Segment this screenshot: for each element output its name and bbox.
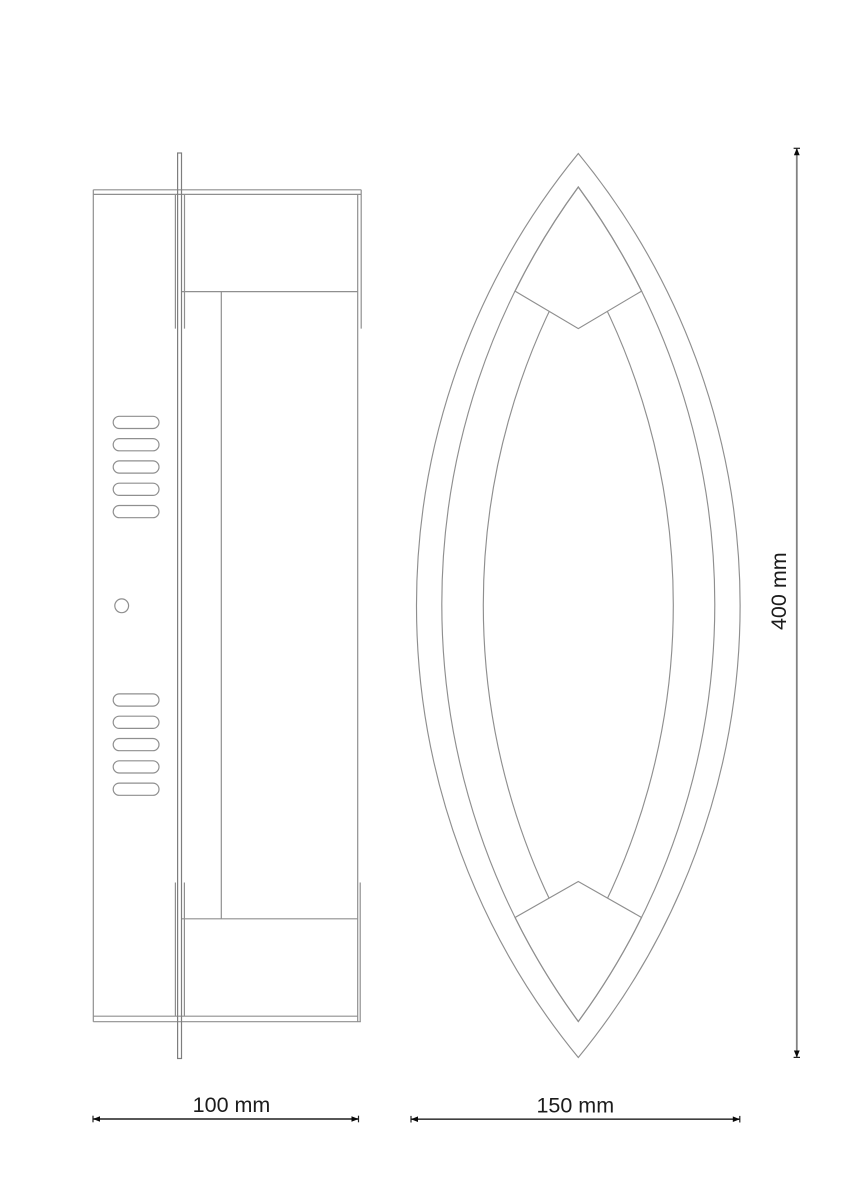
svg-text:100 mm: 100 mm — [193, 1093, 271, 1117]
svg-text:150 mm: 150 mm — [536, 1094, 614, 1118]
svg-text:400 mm: 400 mm — [767, 552, 791, 630]
